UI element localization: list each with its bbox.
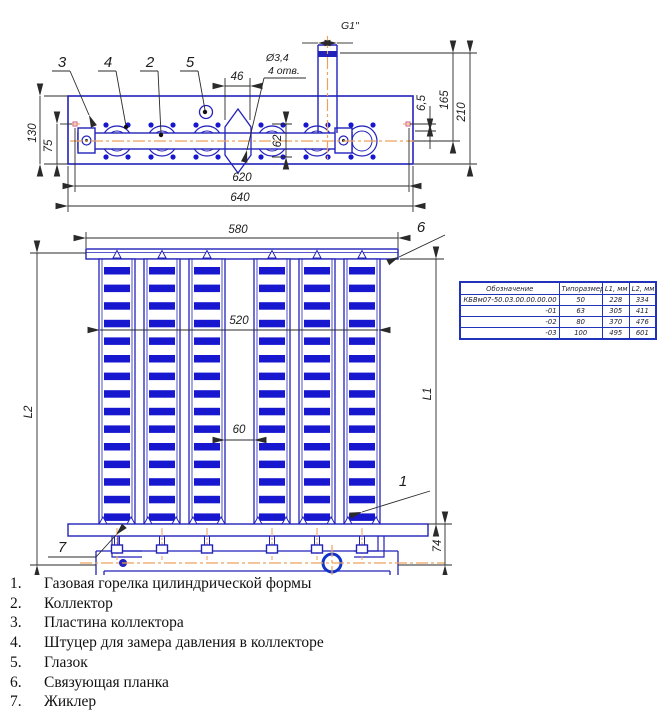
col-designation: Обозначение: [460, 282, 559, 295]
dim-L1: L1: [422, 388, 434, 401]
flame-slot: [104, 355, 130, 363]
jet-dot: [148, 154, 153, 159]
list-item: 4. Штуцер для замера давления в коллекто…: [10, 633, 324, 653]
dim-6-5: 6,5: [416, 94, 428, 111]
flame-slot: [304, 373, 330, 381]
dim-46: 46: [231, 71, 244, 83]
dim-520: 520: [229, 315, 249, 327]
flame-slot: [104, 408, 130, 416]
flame-slot: [259, 285, 285, 293]
flame-slot: [149, 320, 175, 328]
flame-slot: [259, 478, 285, 486]
flame-slot: [349, 408, 375, 416]
flame-slot: [149, 425, 175, 433]
flame-slot: [259, 390, 285, 398]
list-item: 7. Жиклер: [10, 692, 324, 712]
flame-slot: [349, 267, 375, 275]
flame-slot: [149, 373, 175, 381]
dim-62: 62: [272, 134, 284, 147]
flame-slot: [149, 478, 175, 486]
flame-slot: [194, 443, 220, 451]
flame-slot: [349, 461, 375, 469]
flame-slot: [149, 267, 175, 275]
hole-diameter-label: Ø3,4: [265, 52, 289, 64]
flame-slot: [304, 478, 330, 486]
flame-slot: [149, 408, 175, 416]
flame-slot: [349, 355, 375, 363]
flame-slot: [304, 496, 330, 504]
flame-slot: [194, 478, 220, 486]
flame-slot: [194, 425, 220, 433]
flame-slot: [259, 320, 285, 328]
jet-dot: [193, 122, 198, 127]
flame-slot: [104, 513, 130, 521]
flame-slot: [304, 408, 330, 416]
dim-60: 60: [233, 424, 246, 436]
flame-slot: [104, 461, 130, 469]
jet-nut: [202, 545, 213, 553]
callout-2: 2: [145, 54, 155, 71]
flame-slot: [149, 513, 175, 521]
dim-74: 74: [432, 540, 444, 553]
jet-dot: [258, 122, 263, 127]
flame-slot: [149, 461, 175, 469]
flame-slot: [259, 373, 285, 381]
flame-slot: [149, 355, 175, 363]
table-row: -01 63 305 411: [460, 306, 656, 317]
callout-5: 5: [186, 54, 195, 71]
flame-slot: [304, 302, 330, 310]
flame-slot: [304, 355, 330, 363]
flame-slot: [349, 373, 375, 381]
dim-620: 620: [232, 172, 252, 184]
dim-580: 580: [228, 224, 248, 236]
flame-slot: [104, 337, 130, 345]
flame-slot: [194, 302, 220, 310]
flame-slot: [104, 496, 130, 504]
tie-strip: [86, 249, 398, 259]
flame-slot: [349, 302, 375, 310]
jet-nut: [357, 545, 368, 553]
flame-slot: [349, 425, 375, 433]
jet-dot: [258, 154, 263, 159]
flame-slot: [149, 496, 175, 504]
jet-dot: [303, 154, 308, 159]
table-row: -03 100 495 601: [460, 328, 656, 340]
flame-slot: [259, 355, 285, 363]
size-table: Обозначение Типоразмер L1, мм L2, мм КБВ…: [459, 281, 657, 340]
list-item: 3. Пластина коллектора: [10, 613, 324, 633]
jet-dot: [170, 122, 175, 127]
col-l1: L1, мм: [602, 282, 629, 295]
flame-slot: [304, 337, 330, 345]
flame-slot: [259, 425, 285, 433]
list-item: 1. Газовая горелка цилиндрической формы: [10, 574, 324, 594]
jet-dot: [103, 122, 108, 127]
top-view: [68, 36, 414, 173]
callout-6: 6: [417, 219, 426, 236]
table-row: КБВм07-50.03.00.00.00.00 50 228 334: [460, 295, 656, 306]
flame-slot: [104, 320, 130, 328]
list-item: 2. Коллектор: [10, 594, 324, 614]
list-item: 6. Связующая планка: [10, 673, 324, 693]
jet-dot: [370, 154, 375, 159]
flame-slot: [194, 496, 220, 504]
flame-slot: [104, 285, 130, 293]
flame-slot: [194, 285, 220, 293]
flame-slot: [349, 285, 375, 293]
flame-slot: [304, 267, 330, 275]
flame-slot: [149, 337, 175, 345]
flame-slot: [194, 267, 220, 275]
flame-slot: [304, 285, 330, 293]
flame-slot: [194, 337, 220, 345]
flame-slot: [149, 285, 175, 293]
flame-slot: [194, 320, 220, 328]
flame-slot: [259, 302, 285, 310]
flame-slot: [259, 337, 285, 345]
dim-165: 165: [439, 90, 451, 110]
collector-plate-outline: [68, 96, 413, 164]
hole-count-label: 4 отв.: [268, 65, 300, 77]
size-table-header-row: Обозначение Типоразмер L1, мм L2, мм: [460, 282, 656, 295]
flame-slot: [304, 461, 330, 469]
flame-slot: [194, 408, 220, 416]
flame-slot: [104, 267, 130, 275]
col-typesize: Типоразмер: [559, 282, 602, 295]
callout-1: 1: [399, 473, 407, 490]
jet-nut: [112, 545, 123, 553]
flame-slot: [104, 425, 130, 433]
dim-210: 210: [456, 102, 468, 123]
jet-nut: [267, 545, 278, 553]
jet-dot: [348, 122, 353, 127]
bottom-collector: [96, 536, 398, 575]
flame-slot: [194, 373, 220, 381]
flame-slot: [259, 513, 285, 521]
flame-slot: [304, 320, 330, 328]
flame-slot: [349, 496, 375, 504]
jet-nut: [312, 545, 323, 553]
flame-slot: [304, 425, 330, 433]
jet-dot: [215, 122, 220, 127]
flame-slot: [259, 443, 285, 451]
dim-640: 640: [230, 192, 250, 204]
flame-slot: [194, 513, 220, 521]
flame-slot: [149, 390, 175, 398]
col-l2: L2, мм: [629, 282, 656, 295]
flame-slot: [149, 302, 175, 310]
flame-slot: [104, 302, 130, 310]
flame-slot: [149, 443, 175, 451]
jet-dot: [280, 122, 285, 127]
jet-dot: [170, 154, 175, 159]
jet-dot: [303, 122, 308, 127]
dim-g1: G1": [341, 20, 360, 32]
table-row: -02 80 370 476: [460, 317, 656, 328]
flame-slot: [349, 337, 375, 345]
flame-slot: [304, 513, 330, 521]
flame-slot: [259, 461, 285, 469]
flame-slot: [104, 390, 130, 398]
jet-dot: [148, 122, 153, 127]
flame-slot: [349, 390, 375, 398]
dim-130: 130: [27, 123, 39, 143]
dim-75: 75: [43, 139, 55, 152]
flame-slot: [104, 478, 130, 486]
flame-slot: [349, 443, 375, 451]
flame-slot: [194, 355, 220, 363]
burner-tubes: [99, 251, 380, 525]
front-view: [68, 249, 445, 575]
flame-slot: [259, 496, 285, 504]
flame-slot: [104, 373, 130, 381]
callout-3: 3: [58, 54, 67, 71]
flame-slot: [349, 478, 375, 486]
flame-slot: [304, 390, 330, 398]
list-item: 5. Глазок: [10, 653, 324, 673]
jet-nut: [157, 545, 168, 553]
jet-dot: [125, 154, 130, 159]
jet-dot: [348, 154, 353, 159]
callout-4: 4: [104, 54, 112, 71]
flame-slot: [304, 443, 330, 451]
jet-dot: [370, 122, 375, 127]
engineering-drawing-page: 130 75 620 640 46 Ø3,4 4 отв. G1" 62: [0, 0, 659, 718]
flame-slot: [194, 390, 220, 398]
flame-slot: [349, 513, 375, 521]
parts-list: 1. Газовая горелка цилиндрической формы …: [10, 574, 324, 712]
flame-slot: [259, 408, 285, 416]
dim-L2: L2: [23, 405, 35, 418]
jet-dot: [215, 154, 220, 159]
callout-7: 7: [58, 539, 67, 556]
base-plate: [68, 524, 428, 536]
flame-slot: [259, 267, 285, 275]
jet-dot: [103, 154, 108, 159]
jet-dot: [193, 154, 198, 159]
flame-slot: [349, 320, 375, 328]
flame-slot: [194, 461, 220, 469]
front-view-dimensions: 580 520 60 L1 74 L2 6 1 7: [23, 219, 452, 565]
flame-slot: [104, 443, 130, 451]
